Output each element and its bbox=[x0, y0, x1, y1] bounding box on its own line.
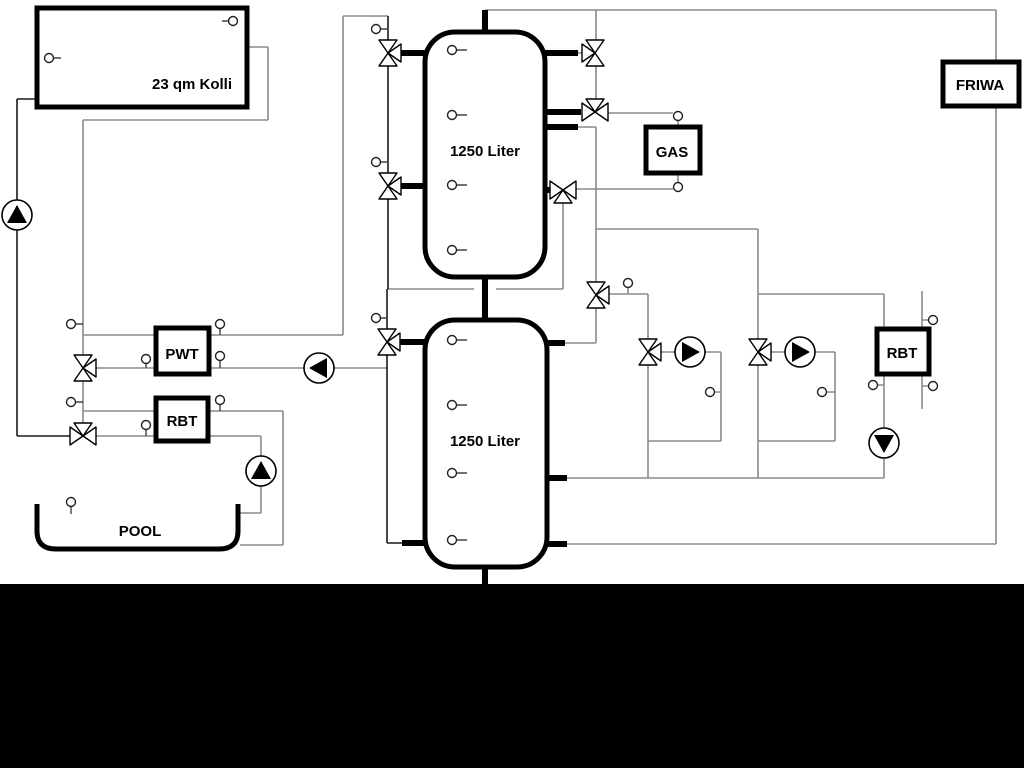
hydraulic-schematic: 23 qm Kolli 1250 Liter 1250 Liter GAS FR… bbox=[0, 0, 1024, 768]
valve-solar-rbt bbox=[70, 423, 96, 445]
valve-gas-mixing bbox=[582, 99, 608, 121]
valve-heating-circuit-1 bbox=[639, 339, 661, 365]
valve-solar-pwt bbox=[74, 355, 96, 381]
rbt-pump bbox=[869, 428, 899, 458]
valve-heating-circuit-2 bbox=[749, 339, 771, 365]
valve-heating-mixing bbox=[587, 282, 609, 308]
valve-charge-tank-top-lower bbox=[379, 173, 401, 199]
pwt-label: PWT bbox=[165, 346, 198, 363]
footer-band bbox=[0, 584, 1024, 768]
schematic-canvas: 23 qm Kolli 1250 Liter 1250 Liter GAS FR… bbox=[0, 0, 1024, 768]
heating-pump-2 bbox=[785, 337, 815, 367]
valve-charge-tank-top-upper bbox=[379, 40, 401, 66]
heating-pump-1 bbox=[675, 337, 705, 367]
valve-gas-return bbox=[550, 181, 576, 203]
buffer-tank-top-label: 1250 Liter bbox=[450, 143, 520, 160]
pool-pump bbox=[246, 456, 276, 486]
valve-tank-top-right-upper bbox=[582, 40, 604, 66]
rbt-right-label: RBT bbox=[887, 345, 918, 362]
valve-charge-tank-bottom bbox=[378, 329, 400, 355]
solar-pump bbox=[2, 200, 32, 230]
pwt-pump bbox=[304, 353, 334, 383]
pool-label: POOL bbox=[119, 523, 162, 540]
rbt-left-label: RBT bbox=[167, 413, 198, 430]
collector-label: 23 qm Kolli bbox=[152, 76, 232, 93]
buffer-tank-bottom-label: 1250 Liter bbox=[450, 433, 520, 450]
friwa-label: FRIWA bbox=[956, 77, 1004, 94]
gas-boiler-label: GAS bbox=[656, 144, 689, 161]
